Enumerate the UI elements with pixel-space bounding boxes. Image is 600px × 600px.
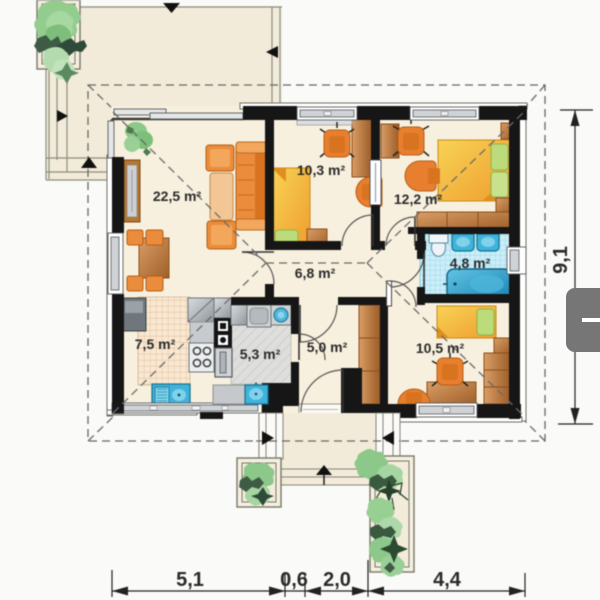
svg-text:5,1: 5,1	[176, 569, 204, 591]
svg-text:12,2 m²: 12,2 m²	[394, 191, 443, 207]
svg-text:5,3 m²: 5,3 m²	[240, 346, 281, 362]
svg-text:0,6: 0,6	[280, 569, 308, 591]
svg-text:9,1: 9,1	[550, 246, 572, 274]
svg-text:7,5 m²: 7,5 m²	[135, 336, 176, 352]
svg-text:6,8 m²: 6,8 m²	[295, 265, 336, 281]
svg-text:10,5 m²: 10,5 m²	[416, 340, 465, 356]
svg-text:2,0: 2,0	[323, 569, 351, 591]
svg-text:4,8 m²: 4,8 m²	[450, 255, 491, 271]
svg-text:22,5 m²: 22,5 m²	[153, 188, 202, 204]
svg-text:4,4: 4,4	[433, 569, 462, 591]
svg-text:10,3 m²: 10,3 m²	[297, 162, 346, 178]
svg-text:5,0 m²: 5,0 m²	[307, 339, 348, 355]
